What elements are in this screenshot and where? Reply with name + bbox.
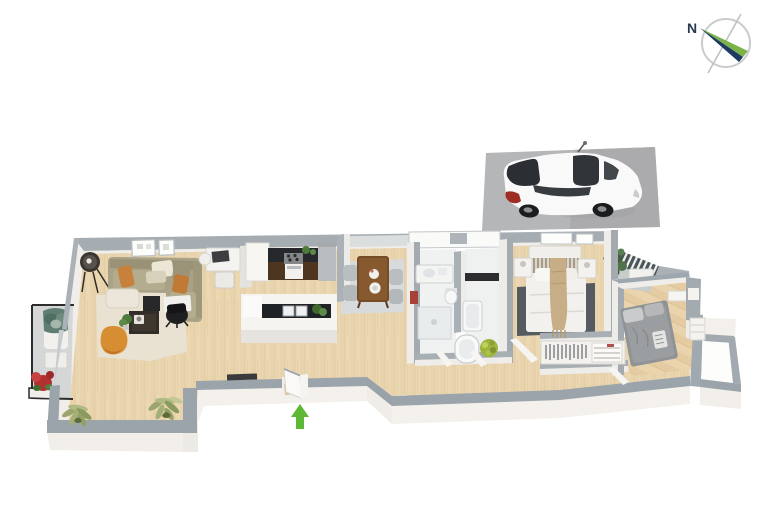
- svg-text:N: N: [687, 20, 697, 36]
